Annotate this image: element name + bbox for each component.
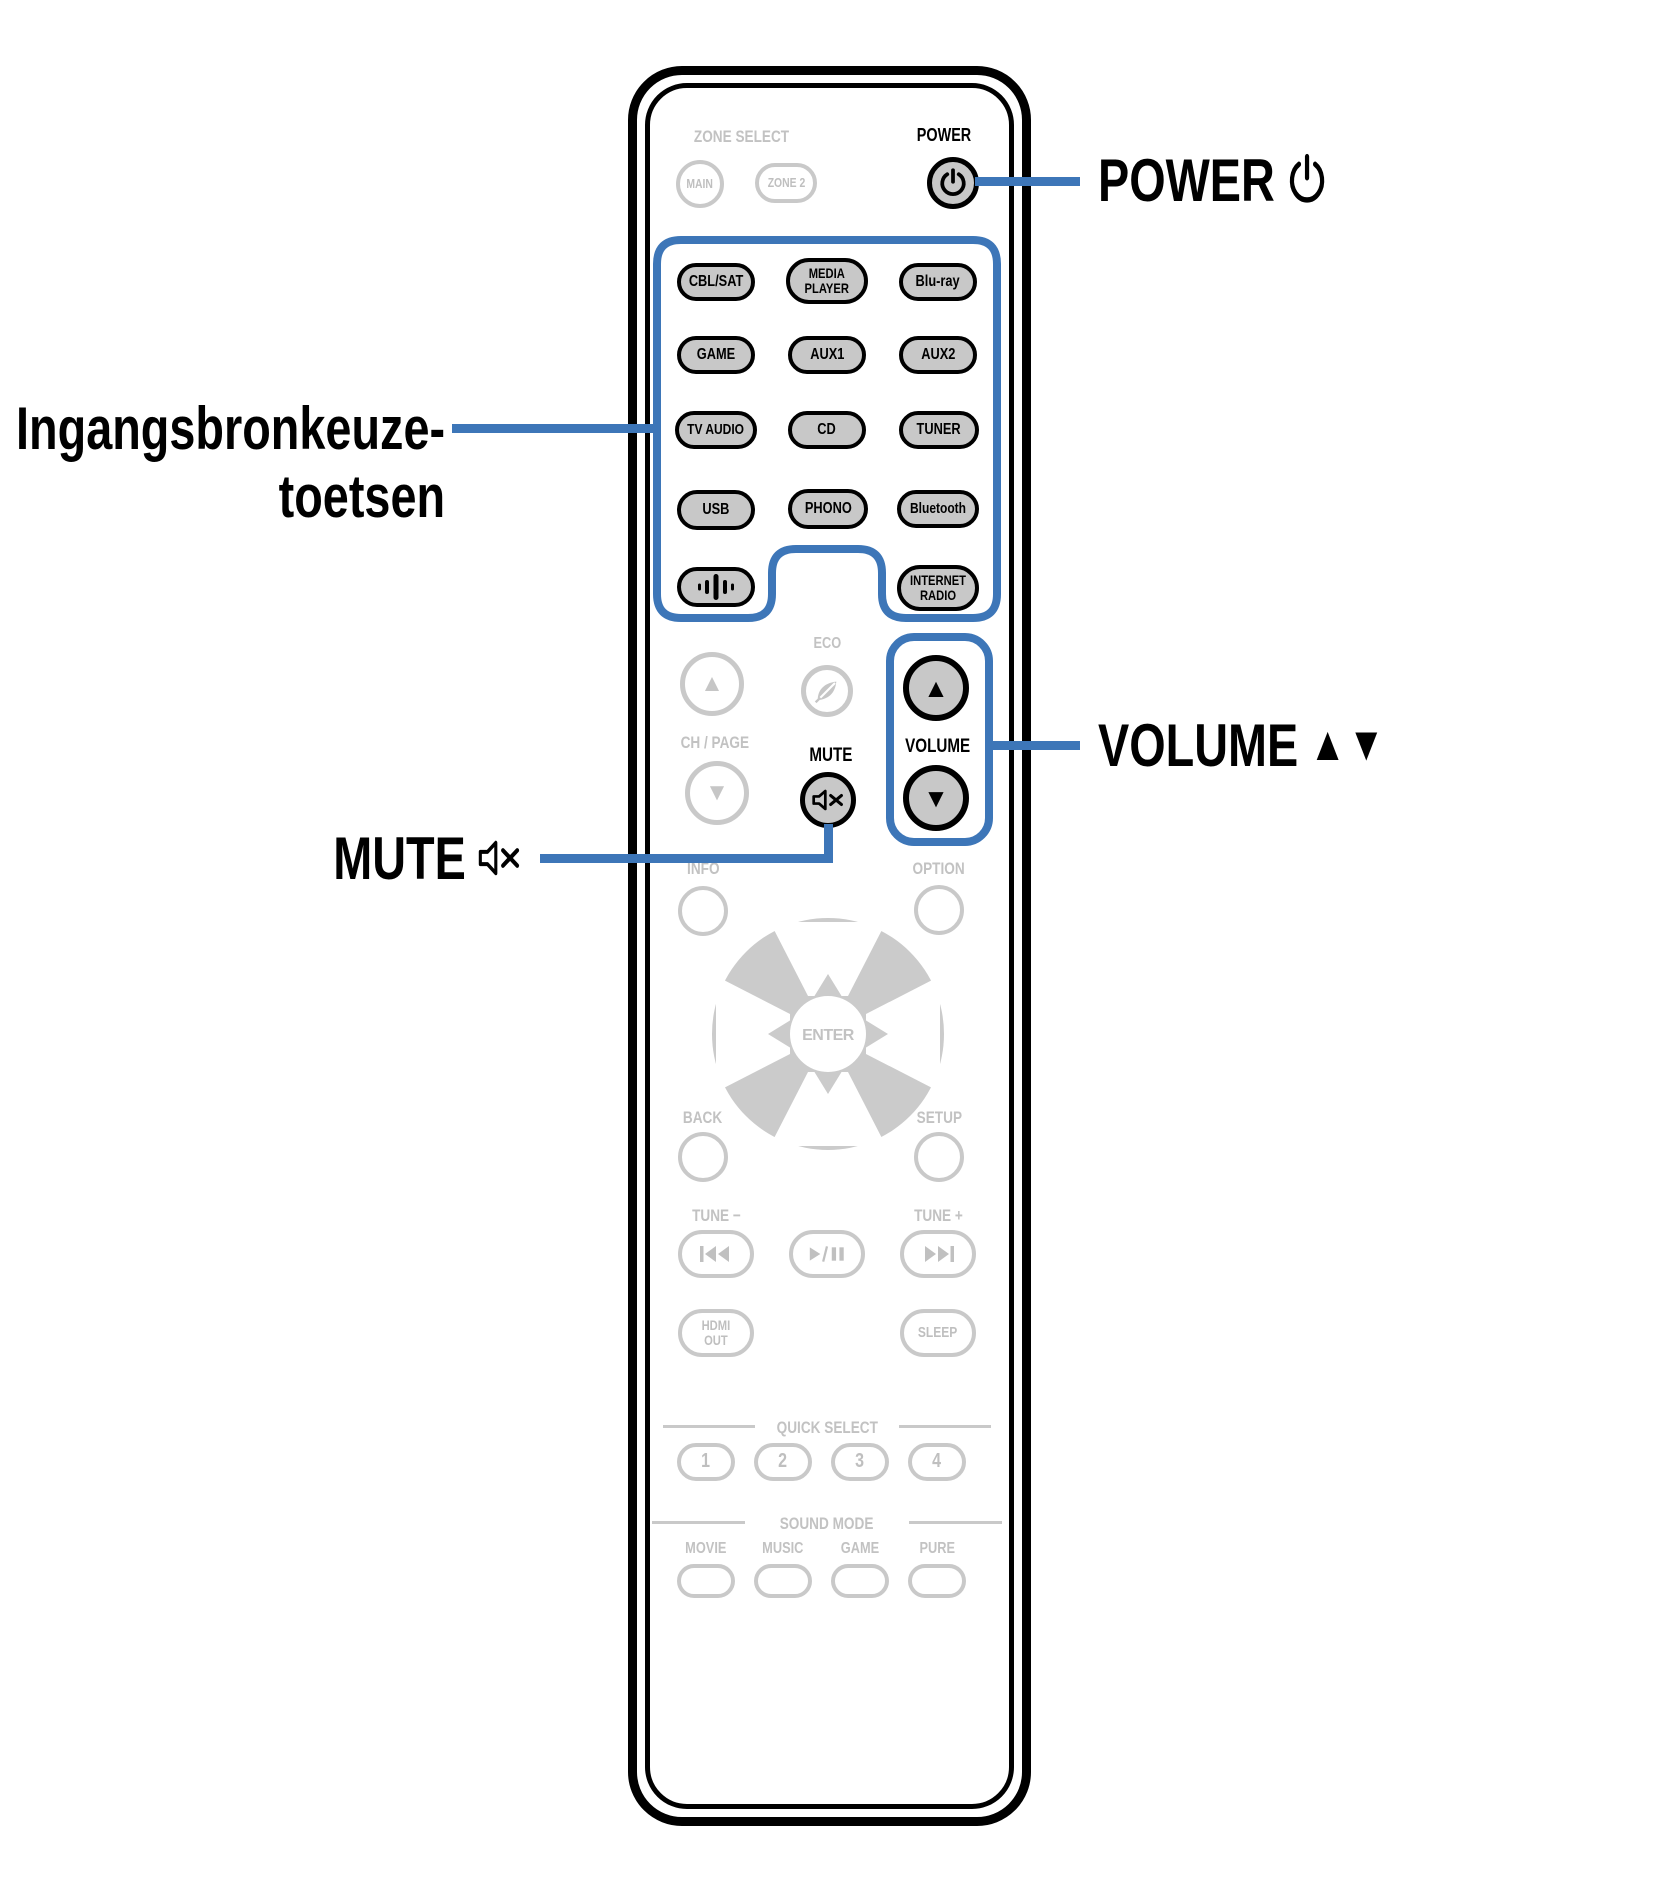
enter-label: ENTER <box>802 1027 855 1044</box>
skip-back-button[interactable] <box>678 1230 754 1278</box>
power-callout-line <box>975 177 1080 186</box>
sound-mode-rule-right <box>909 1521 1002 1524</box>
eco-leaf-icon <box>811 675 843 707</box>
power-callout-label: POWER <box>1098 146 1275 215</box>
quick-select-rule-right <box>899 1425 991 1428</box>
volume-up-button[interactable]: ▲ <box>903 655 969 721</box>
volume-up-icon: ▲ <box>923 675 949 701</box>
eco-label: ECO <box>787 635 867 653</box>
zone2-button[interactable]: ZONE 2 <box>755 163 817 203</box>
main-zone-button[interactable]: MAIN <box>676 160 724 208</box>
volume-callout: VOLUME ▲▼ <box>1098 715 1386 775</box>
quick-select-1-button[interactable]: 1 <box>677 1443 735 1481</box>
volume-down-button[interactable]: ▼ <box>903 765 969 831</box>
volume-down-icon: ▼ <box>1348 718 1387 771</box>
mute-button-label: MUTE <box>771 745 891 767</box>
volume-down-icon: ▼ <box>923 785 949 811</box>
mute-callout-label: MUTE <box>333 824 466 893</box>
tune-down-label: TUNE − <box>656 1206 776 1226</box>
sound-mode-movie-button[interactable] <box>677 1564 735 1598</box>
sound-mode-movie-label: MOVIE <box>666 1540 746 1558</box>
sound-mode-music-button[interactable] <box>754 1564 812 1598</box>
volume-callout-label: VOLUME <box>1098 711 1298 780</box>
mute-callout-line-vertical <box>824 824 833 863</box>
mute-callout: MUTE <box>333 828 522 888</box>
quick-select-4-button[interactable]: 4 <box>908 1443 966 1481</box>
back-button[interactable] <box>678 1132 728 1182</box>
eco-button[interactable] <box>801 665 853 717</box>
input-source-callout: Ingangsbronkeuze- toetsen <box>16 395 445 531</box>
tune-up-label: TUNE + <box>878 1206 998 1226</box>
input-source-callout-line <box>452 424 661 433</box>
setup-button[interactable] <box>914 1132 964 1182</box>
quick-select-3-button[interactable]: 3 <box>831 1443 889 1481</box>
skip-back-icon <box>698 1244 734 1264</box>
power-icon <box>1286 151 1328 209</box>
sound-mode-pure-label: PURE <box>897 1540 977 1558</box>
sound-mode-pure-button[interactable] <box>908 1564 966 1598</box>
volume-up-icon: ▲ <box>1309 718 1348 771</box>
mute-icon <box>477 836 522 880</box>
channel-page-label: CH / PAGE <box>655 733 775 753</box>
input-source-callout-line1: Ingangsbronkeuze- <box>16 395 445 463</box>
sound-mode-rule-left <box>652 1521 745 1524</box>
channel-down-icon: ▼ <box>705 781 729 805</box>
play-pause-icon <box>806 1244 848 1264</box>
mute-button[interactable] <box>800 772 856 828</box>
volume-callout-line <box>993 741 1080 750</box>
volume-button-label: VOLUME <box>878 736 998 758</box>
sleep-button[interactable]: SLEEP <box>900 1309 976 1357</box>
back-label: BACK <box>643 1108 763 1128</box>
power-icon <box>938 168 968 198</box>
option-label: OPTION <box>879 859 999 879</box>
zone-select-label: ZONE SELECT <box>672 127 812 147</box>
sound-mode-game-label: GAME <box>820 1540 900 1558</box>
sound-mode-music-label: MUSIC <box>743 1540 823 1558</box>
channel-page-down-button[interactable]: ▼ <box>685 761 749 825</box>
quick-select-2-button[interactable]: 2 <box>754 1443 812 1481</box>
manual-remote-diagram: ZONE SELECT MAIN ZONE 2 POWER CBL/SAT ME… <box>0 0 1665 1878</box>
channel-up-icon: ▲ <box>700 672 724 696</box>
setup-label: SETUP <box>879 1108 999 1128</box>
input-source-group-outline <box>650 233 1004 625</box>
power-callout: POWER <box>1098 150 1328 210</box>
hdmi-out-button[interactable]: HDMI OUT <box>678 1309 754 1357</box>
input-source-callout-line2: toetsen <box>279 463 445 531</box>
mute-callout-line-horizontal <box>540 854 833 863</box>
skip-forward-button[interactable] <box>900 1230 976 1278</box>
channel-page-up-button[interactable]: ▲ <box>680 652 744 716</box>
mute-icon <box>811 787 845 813</box>
play-pause-button[interactable] <box>789 1230 865 1278</box>
sound-mode-title: SOUND MODE <box>747 1514 907 1534</box>
quick-select-title: QUICK SELECT <box>747 1418 907 1438</box>
power-button[interactable] <box>927 157 979 209</box>
sound-mode-game-button[interactable] <box>831 1564 889 1598</box>
skip-forward-icon <box>920 1244 956 1264</box>
power-button-label: POWER <box>884 125 1004 146</box>
quick-select-rule-left <box>663 1425 755 1428</box>
